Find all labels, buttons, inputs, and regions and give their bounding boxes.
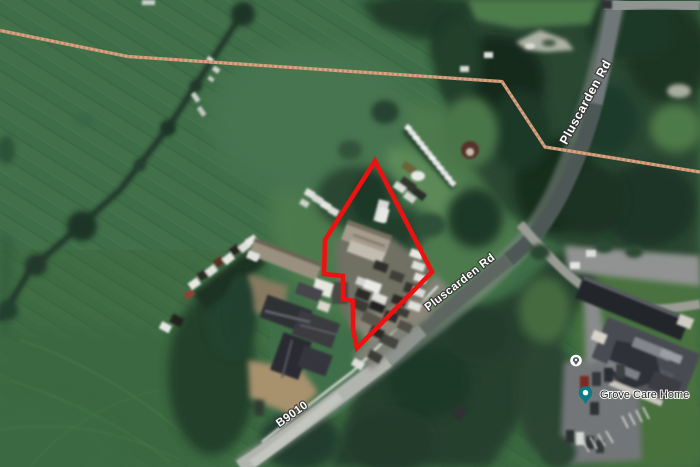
svg-text:Grove Care Home: Grove Care Home — [600, 389, 689, 401]
